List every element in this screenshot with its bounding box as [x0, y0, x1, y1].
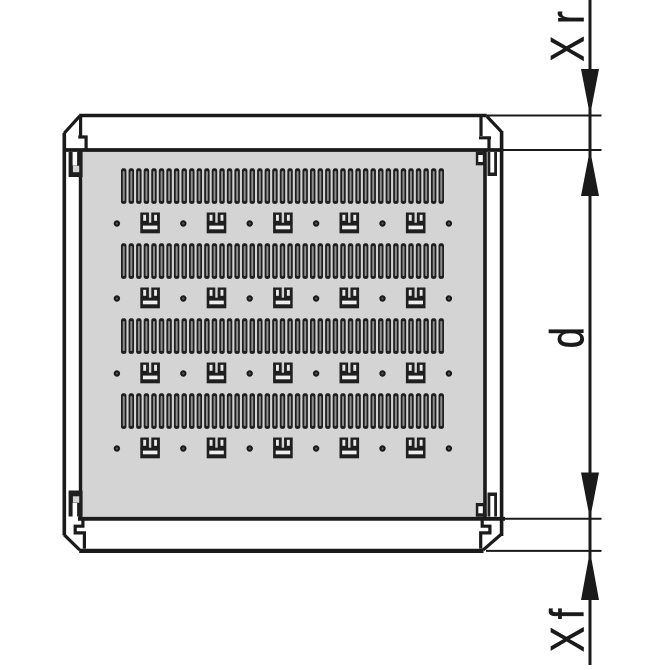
- svg-text:d: d: [542, 327, 595, 348]
- svg-text:X f: X f: [542, 609, 595, 652]
- svg-text:X r: X r: [542, 10, 595, 61]
